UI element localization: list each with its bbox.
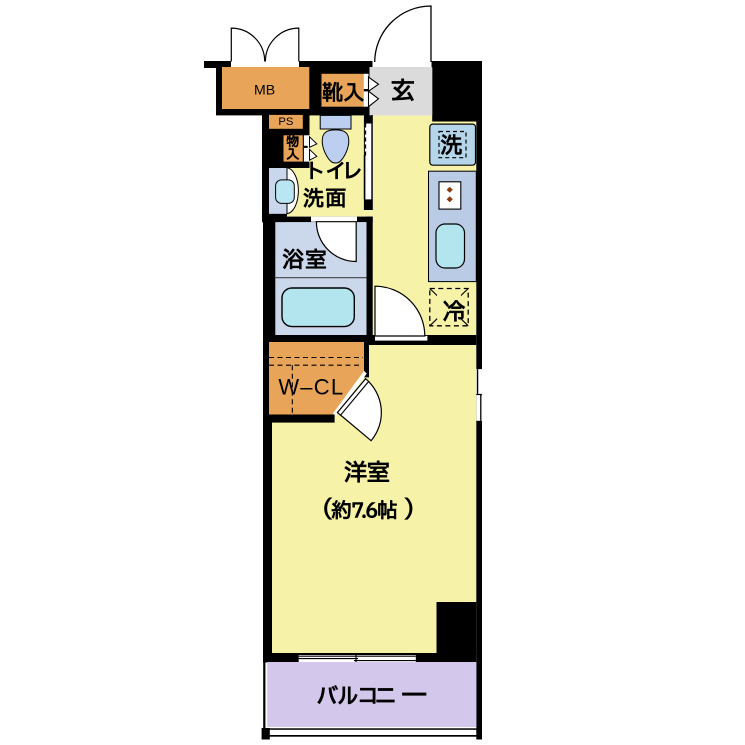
svg-text:W–CL: W–CL [278,374,344,399]
svg-text:MB: MB [254,81,275,97]
svg-text:PS: PS [278,116,294,128]
